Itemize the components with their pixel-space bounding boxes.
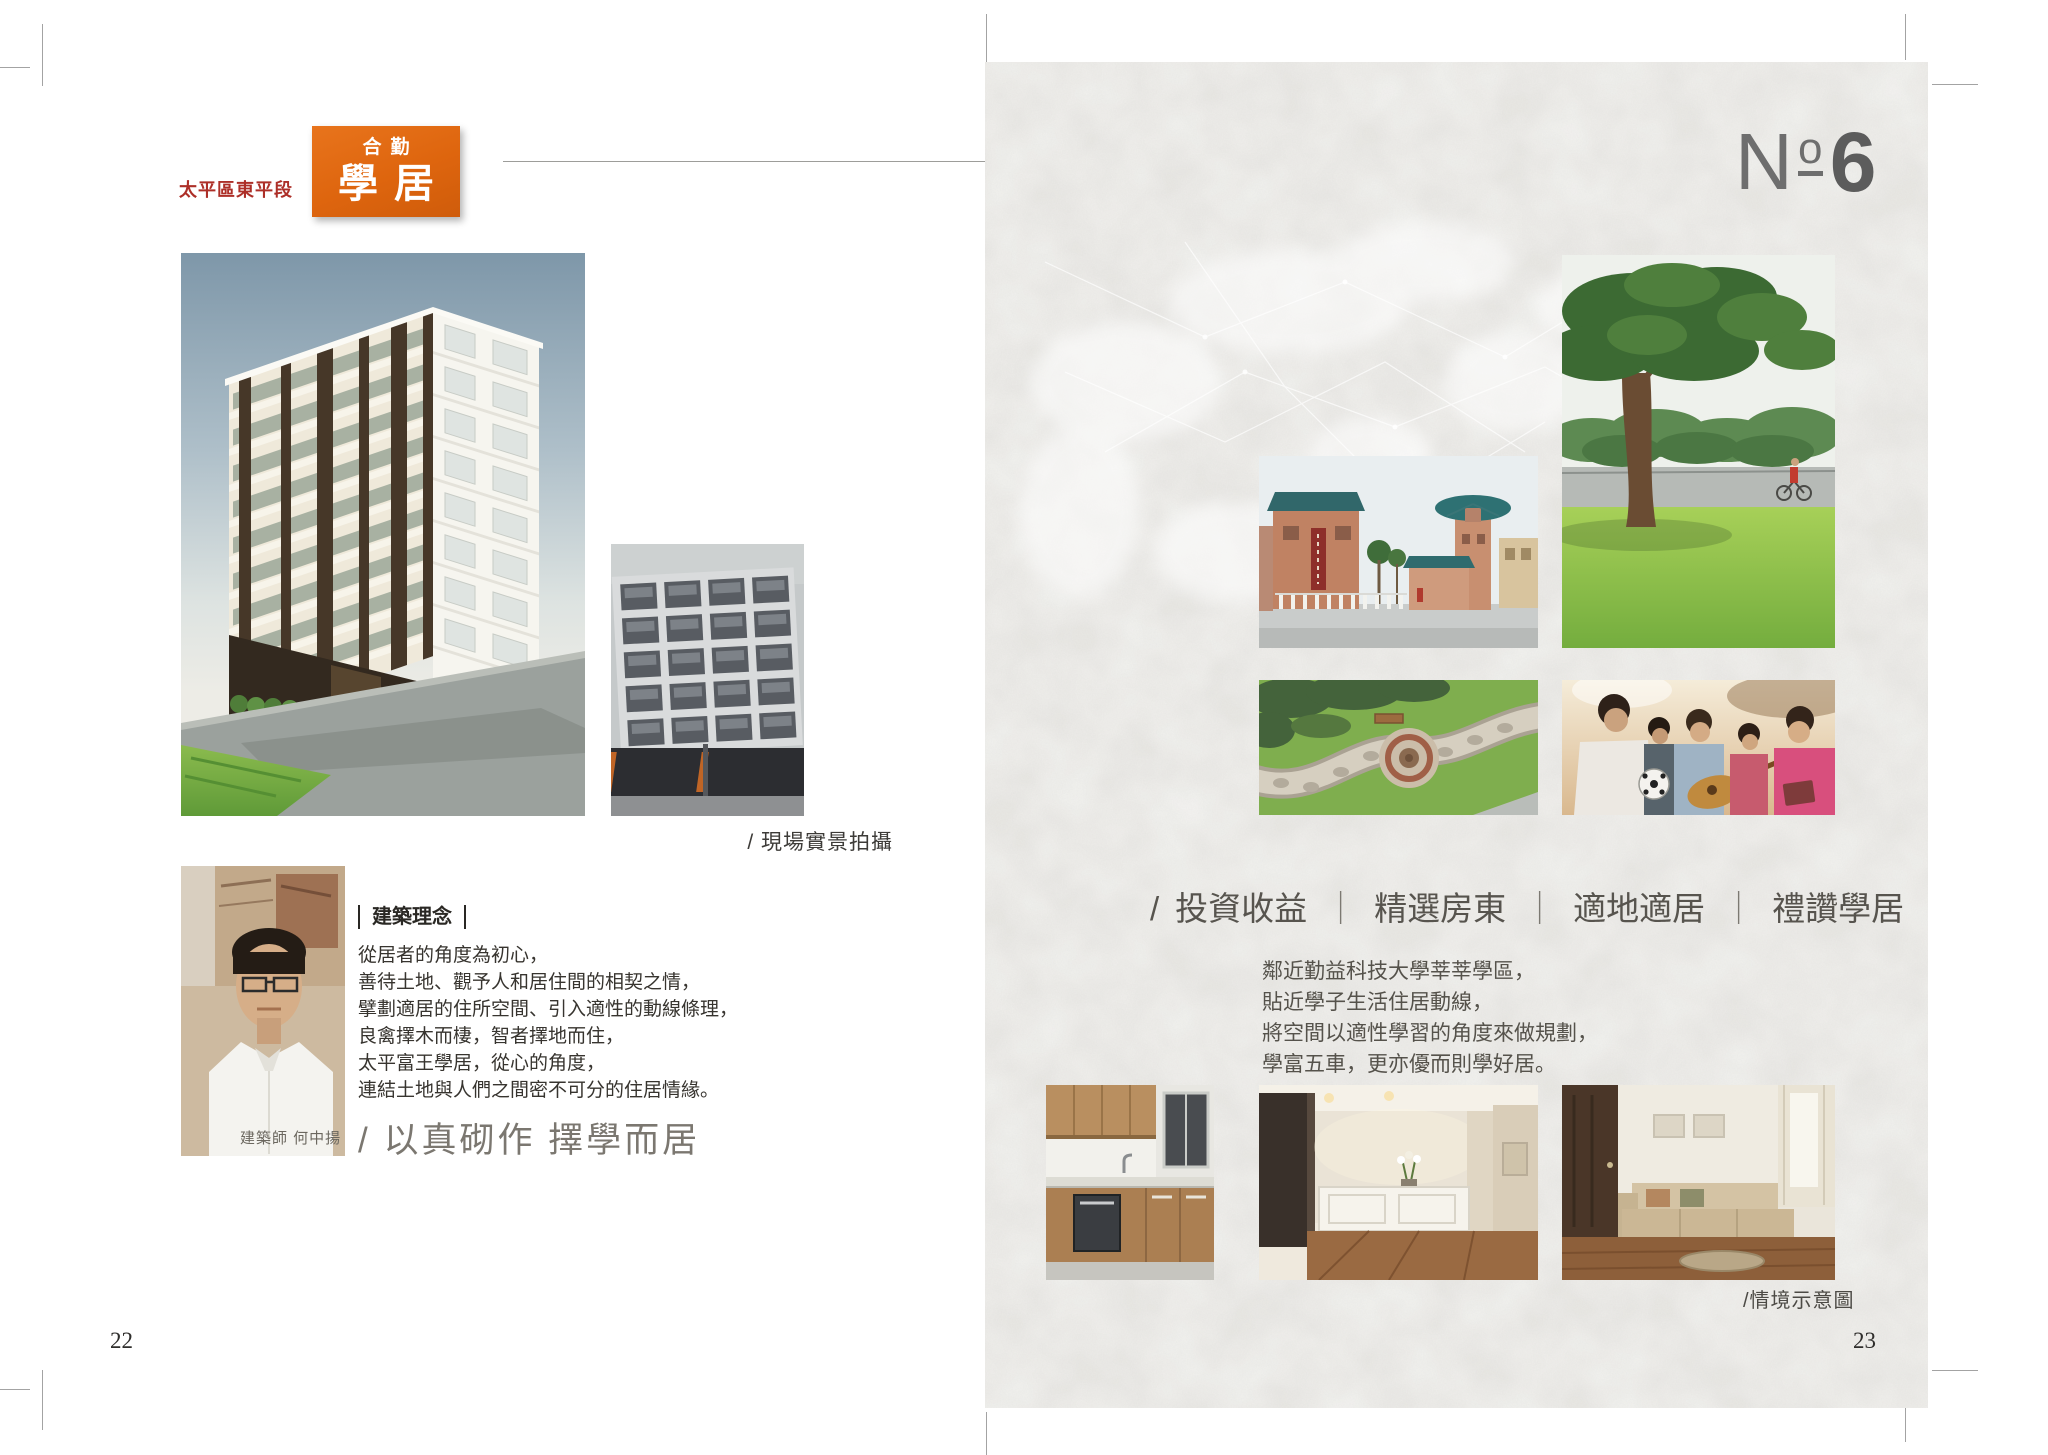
philosophy-line: 從居者的角度為初心， [358, 942, 738, 969]
building-render-illustration [181, 253, 585, 816]
hallway-photo [1259, 1085, 1538, 1280]
park-photo-illustration [1562, 255, 1835, 648]
headline-segment: 適地適居 [1573, 882, 1705, 930]
architect-photo-illustration [181, 866, 345, 1156]
crop-mark [986, 1412, 987, 1455]
location-label: 太平區東平段 [179, 176, 293, 202]
right-page-paper: N o 6 [985, 62, 1928, 1408]
issue-number-digit: 6 [1830, 130, 1877, 194]
philosophy-line: 良禽擇木而棲，智者擇地而住， [358, 1023, 738, 1050]
school-photo [1259, 456, 1538, 648]
building-render-photo [181, 253, 585, 816]
headline-divider: ｜ [1722, 882, 1755, 930]
philosophy-line: 太平富王學居，從心的角度， [358, 1050, 738, 1077]
architect-photo [181, 866, 345, 1156]
left-slogan: / 以真砌作 擇學而居 [358, 1112, 700, 1163]
crop-mark [1905, 14, 1906, 60]
philosophy-line: 善待土地、觀予人和居住間的相契之情， [358, 969, 738, 996]
garden-photo-illustration [1259, 680, 1538, 815]
crop-mark [0, 67, 30, 68]
headline-segment: 投資收益 [1175, 882, 1307, 930]
right-paragraph: 鄰近勤益科技大學莘莘學區， 貼近學子生活住居動線， 將空間以適性學習的角度來做規… [1262, 956, 1598, 1080]
page-number-right: 23 [1853, 1328, 1876, 1354]
kitchen-photo-illustration [1046, 1085, 1214, 1280]
students-photo-illustration [1562, 680, 1835, 815]
brand-badge: 合勤 學居 [312, 126, 460, 217]
site-photo [611, 544, 804, 816]
philosophy-paragraph: 從居者的角度為初心， 善待土地、觀予人和居住間的相契之情， 擘劃適居的住所空間、… [358, 942, 738, 1104]
park-photo [1562, 255, 1835, 648]
site-photo-illustration [611, 544, 804, 816]
site-photo-caption: / 現場實景拍攝 [640, 826, 893, 856]
philosophy-line: 連結土地與人們之間密不可分的住居情緣。 [358, 1077, 738, 1104]
crop-mark [42, 1370, 43, 1430]
brand-badge-name: 學居 [322, 161, 450, 207]
crop-mark [0, 1389, 30, 1390]
right-headline: / 投資收益 ｜ 精選房東 ｜ 適地適居 ｜ 禮讚學居 [1150, 882, 1904, 930]
interior-photos-caption: /情境示意圖 [1743, 1284, 1855, 1313]
philosophy-line: 擘劃適居的住所空間、引入適性的動線條理， [358, 996, 738, 1023]
garden-photo [1259, 680, 1538, 815]
school-photo-illustration [1259, 456, 1538, 648]
living-room-photo [1562, 1085, 1835, 1280]
issue-number-o: o [1798, 132, 1823, 176]
right-paragraph-line: 學富五車，更亦優而則學好居。 [1262, 1049, 1598, 1080]
right-paragraph-line: 鄰近勤益科技大學莘莘學區， [1262, 956, 1598, 987]
right-paragraph-line: 貼近學子生活住居動線， [1262, 987, 1598, 1018]
headline-divider: ｜ [1324, 882, 1357, 930]
crop-mark [1932, 1370, 1978, 1371]
living-room-photo-illustration [1562, 1085, 1835, 1280]
issue-number-underline [1798, 171, 1823, 176]
issue-number-o-glyph: o [1798, 132, 1822, 166]
philosophy-heading: 建築理念 [358, 900, 466, 929]
brochure-spread: 太平區東平段 合勤 學居 [0, 0, 2048, 1455]
headline-divider: ｜ [1523, 882, 1556, 930]
kitchen-photo [1046, 1085, 1214, 1280]
issue-number: N o 6 [1735, 130, 1877, 194]
brand-badge-brand: 合勤 [353, 137, 418, 159]
philosophy-heading-text: 建築理念 [358, 905, 466, 929]
architect-caption: 建築師 何中揚 [240, 1127, 341, 1148]
crop-mark [986, 14, 987, 62]
hallway-photo-illustration [1259, 1085, 1538, 1280]
headline-segment: 禮讚學居 [1772, 882, 1904, 930]
issue-number-n: N [1735, 130, 1793, 194]
page-number-left: 22 [110, 1328, 133, 1354]
right-paragraph-line: 將空間以適性學習的角度來做規劃， [1262, 1018, 1598, 1049]
crop-mark [42, 24, 43, 86]
students-photo [1562, 680, 1835, 815]
headline-segment: 精選房東 [1374, 882, 1506, 930]
headline-slash: / [1150, 890, 1159, 928]
crop-mark [1932, 84, 1978, 85]
